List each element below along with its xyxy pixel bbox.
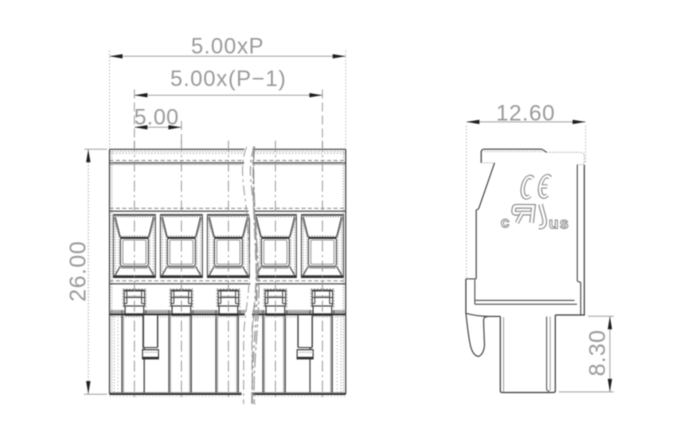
svg-text:8.30: 8.30 xyxy=(584,330,610,377)
svg-text:26.00: 26.00 xyxy=(65,241,91,302)
svg-text:c: c xyxy=(501,215,510,232)
svg-text:5.00xP: 5.00xP xyxy=(191,34,264,59)
svg-text:5.00: 5.00 xyxy=(134,104,179,129)
svg-text:5.00x(P−1): 5.00x(P−1) xyxy=(170,66,286,91)
svg-text:us: us xyxy=(549,215,570,232)
